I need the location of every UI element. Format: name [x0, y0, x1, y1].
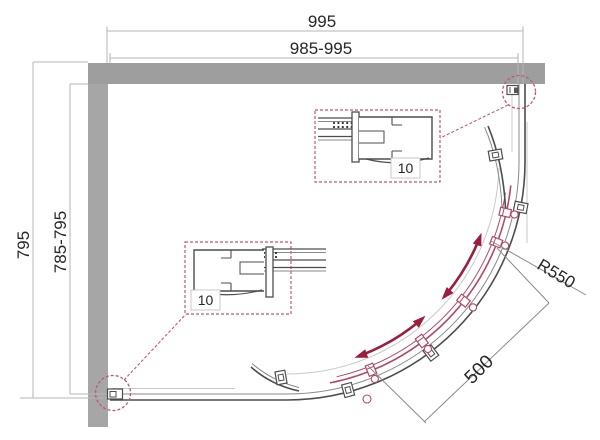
- detail-label: 10: [398, 160, 414, 176]
- door-roller: [499, 207, 512, 217]
- wall-left: [88, 63, 108, 427]
- glass-face-lines: [112, 86, 512, 389]
- glass-inner-edge: [110, 84, 519, 394]
- dim-radius: R550: [534, 255, 579, 292]
- profile-tab: [352, 112, 359, 162]
- detail-label: 10: [198, 292, 214, 308]
- entry-dim-lines: [368, 248, 549, 423]
- sliding-door-arc-inner: [337, 193, 506, 377]
- technical-drawing-canvas: 995 985-995 795 785-795: [0, 0, 600, 440]
- callout-leader-top: [434, 105, 508, 141]
- entry-width-dimension: 500: [368, 248, 549, 423]
- clamp-bracket: [275, 370, 287, 385]
- dim-top-overall: 995: [308, 12, 336, 31]
- detail-box-top: 10: [315, 110, 440, 182]
- roller-wheel: [511, 211, 518, 218]
- radius-dimension: R550: [491, 241, 586, 295]
- enclosure-plan-svg: 995 985-995 795 785-795: [0, 0, 600, 440]
- corner-bracket-detail: [110, 392, 116, 398]
- roller-wheel: [469, 304, 476, 311]
- profile-body: [359, 117, 432, 159]
- corner-bracket-detail: [514, 88, 518, 94]
- clamp-bracket: [488, 149, 503, 161]
- callout-leader-bottom: [124, 313, 187, 380]
- slide-arrow-upper: [447, 241, 479, 294]
- profile-tab: [266, 247, 273, 297]
- roller-wheel: [371, 375, 378, 382]
- door-roller: [365, 363, 377, 376]
- wall-top: [88, 63, 545, 84]
- roller-wheel: [424, 345, 431, 352]
- dimension-labels: 995 985-995 795 785-795: [14, 12, 352, 273]
- arrowhead-icon: [354, 349, 368, 358]
- dim-left-overall: 795: [14, 231, 33, 259]
- dim-top-adjustable: 985-995: [290, 39, 352, 58]
- arrowhead-icon: [473, 233, 482, 247]
- dim-left-adjustable: 785-795: [51, 211, 70, 273]
- profile-body: [194, 250, 264, 291]
- detail-box-bottom: 10: [185, 242, 326, 314]
- roller-wheel: [363, 395, 371, 403]
